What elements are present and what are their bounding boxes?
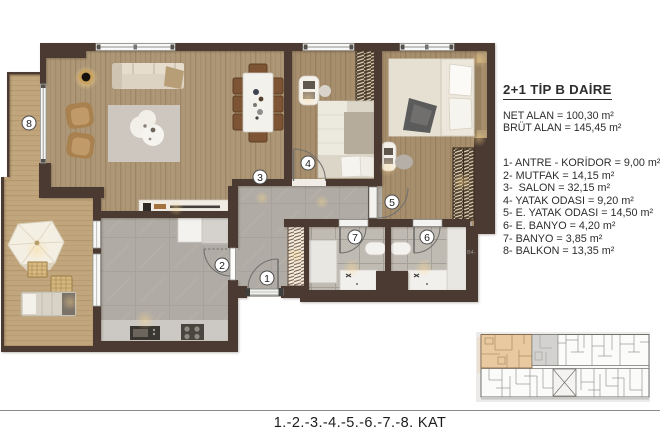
svg-text:B4-: B4- xyxy=(467,250,476,256)
svg-text:4: 4 xyxy=(305,158,311,170)
svg-text:1: 1 xyxy=(264,273,270,285)
svg-text:2: 2 xyxy=(219,260,225,272)
svg-text:3: 3 xyxy=(257,172,263,184)
svg-text:5: 5 xyxy=(389,197,395,209)
svg-text:7: 7 xyxy=(352,232,358,244)
svg-text:8: 8 xyxy=(26,118,32,130)
svg-text:6: 6 xyxy=(424,232,430,244)
